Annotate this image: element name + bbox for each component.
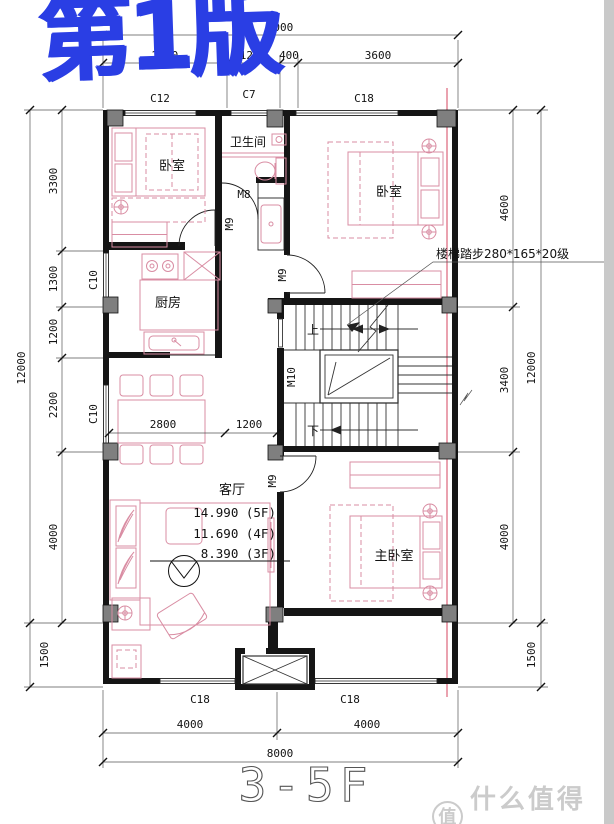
dim-bottom-1: 4000	[177, 718, 204, 731]
dim-right-4: 1500	[525, 642, 538, 669]
dim-right-2: 3400	[498, 367, 511, 394]
window-label-c18-bottom-left: C18	[190, 693, 210, 706]
door-label-m9-3: M9	[266, 474, 279, 487]
plan-title: 3-5F	[239, 758, 374, 812]
balcony-desk	[112, 645, 141, 678]
elevation-4f: 11.690 (4F)	[193, 526, 276, 541]
elevator-shaft	[243, 656, 307, 684]
room-label-bathroom: 卫生间	[230, 135, 266, 149]
dim-interior-1: 2800	[150, 418, 177, 431]
dim-interior-2: 1200	[236, 418, 263, 431]
door-label-m9-2: M9	[276, 268, 289, 281]
elevation-5f: 14.990 (5F)	[193, 505, 276, 520]
dim-left-5: 4000	[47, 524, 60, 551]
stairs-down-label: 下	[307, 424, 319, 438]
floor-plan-page: 上 下	[0, 0, 614, 824]
brand-name: 什么值得买	[470, 779, 614, 824]
window-c18-bottom-right	[315, 679, 437, 684]
door-m10-stairs	[279, 319, 283, 347]
brand-badge-icon: 值	[432, 801, 463, 824]
window-c7	[231, 111, 267, 116]
dim-right-1: 4600	[498, 195, 511, 222]
dim-top-4: 3600	[365, 49, 392, 62]
brand-watermark: 值 什么值得买	[432, 779, 614, 824]
window-label-c10-lower: C10	[87, 404, 100, 424]
dim-right-3: 4000	[498, 524, 511, 551]
stairs-up-label: 上	[307, 323, 319, 337]
staircase: 上 下	[284, 305, 452, 446]
window-label-c7: C7	[242, 88, 255, 101]
window-label-c10-upper: C10	[87, 270, 100, 290]
floor-plan-drawing: 上 下	[0, 0, 614, 824]
stairs-note: 楼梯踏步280*165*20级	[436, 246, 569, 261]
dim-left-3: 1200	[47, 319, 60, 346]
window-c18-top	[296, 111, 398, 116]
doors	[179, 183, 325, 492]
door-m9-bedroom-top-right	[287, 255, 325, 293]
dim-left-6: 1500	[38, 642, 51, 669]
dim-right-total: 12000	[525, 351, 538, 384]
door-m9-master-bedroom	[280, 456, 316, 492]
elevation-3f: 8.390 (3F)	[201, 546, 276, 561]
window-c18-bottom-left	[160, 679, 235, 684]
washbasin-counter	[258, 198, 284, 250]
page-edge-shadow	[604, 0, 614, 824]
dim-left-total: 12000	[15, 351, 28, 384]
room-label-kitchen: 厨房	[155, 295, 181, 311]
door-m9-bedroom-top-left	[179, 210, 215, 246]
room-label-master-bedroom: 主卧室	[374, 548, 413, 564]
door-label-m10: M10	[285, 367, 298, 387]
door-label-m9-1: M9	[223, 217, 236, 230]
window-c10-upper	[104, 253, 109, 297]
dim-top-3: 400	[279, 49, 299, 62]
dim-left-2: 1300	[47, 266, 60, 293]
room-label-living-room: 客厅	[219, 482, 245, 498]
window-label-c12: C12	[150, 92, 170, 105]
door-label-m8: M8	[237, 188, 250, 201]
window-c12	[125, 111, 196, 116]
wardrobe-master	[350, 462, 440, 488]
wardrobe-top-right	[352, 271, 441, 298]
room-label-bedroom-top-right: 卧室	[376, 184, 402, 200]
dim-bottom-2: 4000	[354, 718, 381, 731]
living-room-furniture	[110, 500, 274, 640]
dim-left-1: 3300	[47, 168, 60, 195]
dim-left-4: 2200	[47, 392, 60, 419]
window-label-c18-bottom-right: C18	[340, 693, 360, 706]
window-label-c18-top: C18	[354, 92, 374, 105]
edition-watermark: 第1版	[36, 0, 281, 91]
bed-top-left	[112, 128, 205, 222]
room-label-bedroom-top-left: 卧室	[159, 158, 185, 174]
